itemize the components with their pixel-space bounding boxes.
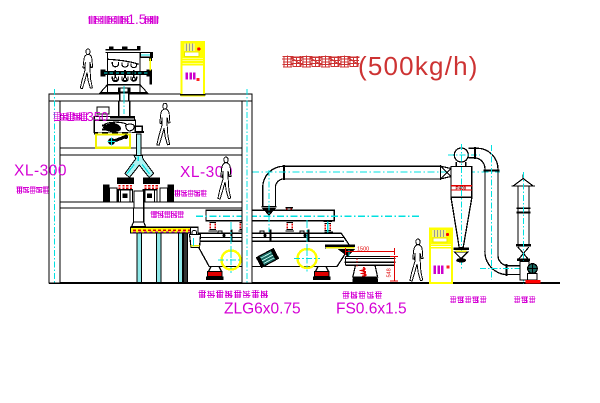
svg-text:XL-300: XL-300 [14,163,67,180]
svg-text:FS0.6x1.5: FS0.6x1.5 [336,301,407,318]
svg-text:(500kg/h): (500kg/h) [358,51,479,81]
svg-text:548: 548 [387,268,393,277]
svg-text:350: 350 [87,109,109,124]
svg-text:ZLG6x0.75: ZLG6x0.75 [224,301,301,318]
svg-text:1.5: 1.5 [128,12,147,27]
svg-text:1500: 1500 [357,247,369,253]
